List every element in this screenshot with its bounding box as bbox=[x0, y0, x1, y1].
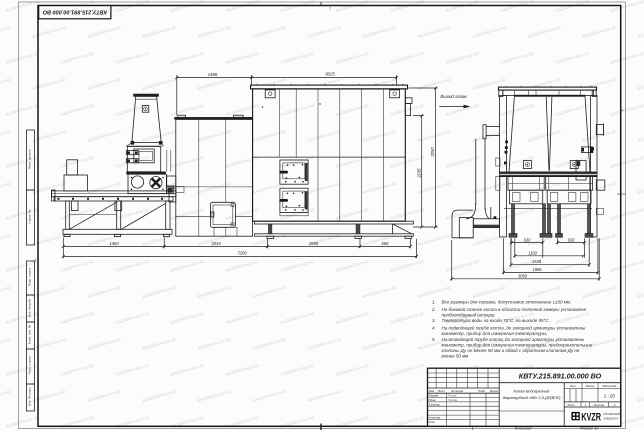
svg-text:2: 2 bbox=[329, 7, 331, 11]
svg-text:KVZR: KVZR bbox=[581, 411, 601, 423]
svg-text:Жаротрубный «КВ»-2,5-ДП(ВПЛ): Жаротрубный «КВ»-2,5-ДП(ВПЛ) bbox=[501, 396, 561, 400]
svg-text:Лист: Лист bbox=[566, 403, 575, 407]
svg-text:Подп. и дата: Подп. и дата bbox=[28, 268, 32, 287]
svg-text:2034: 2034 bbox=[210, 241, 221, 246]
svg-text:630: 630 bbox=[524, 237, 532, 242]
svg-text:Инв. № дубл.: Инв. № дубл. bbox=[28, 298, 32, 317]
svg-text:Температура воды на входе 70°С: Температура воды на входе 70°С, на выход… bbox=[442, 318, 550, 323]
svg-text:Подп.: Подп. bbox=[478, 389, 486, 393]
svg-text:Лист: Лист bbox=[436, 389, 445, 393]
svg-text:№ докум.: № докум. bbox=[451, 389, 464, 393]
svg-text:1486: 1486 bbox=[208, 72, 218, 77]
svg-text:3050: 3050 bbox=[518, 273, 528, 278]
svg-text:1906: 1906 bbox=[532, 267, 542, 272]
svg-text:2.: 2. bbox=[431, 307, 436, 312]
svg-text:Изм.: Изм. bbox=[429, 389, 435, 393]
svg-text:Т.контр.: Т.контр. bbox=[429, 402, 441, 406]
svg-text:2250: 2250 bbox=[430, 147, 435, 158]
svg-text:3.: 3. bbox=[432, 318, 436, 323]
svg-text:Листов: Листов bbox=[593, 403, 605, 407]
svg-text:2235: 2235 bbox=[416, 168, 421, 179]
svg-text:1160: 1160 bbox=[528, 250, 538, 255]
svg-text:685: 685 bbox=[382, 241, 390, 246]
svg-text:1460: 1460 bbox=[109, 241, 119, 246]
svg-text:3025: 3025 bbox=[325, 71, 335, 76]
svg-text:манометр, прибор для измерения: манометр, прибор для измерения температу… bbox=[442, 331, 549, 336]
svg-text:Взам. инв. №: Взам. инв. № bbox=[28, 324, 32, 344]
svg-text:клапаны Ду не менее 50 мм и об: клапаны Ду не менее 50 мм и обвод с обра… bbox=[442, 348, 580, 353]
svg-text:КВТУ.215.891.00.000 ВО: КВТУ.215.891.00.000 ВО bbox=[519, 372, 602, 381]
svg-text:Котел Водогрейный: Котел Водогрейный bbox=[514, 389, 550, 393]
svg-text:5.: 5. bbox=[432, 337, 436, 342]
svg-text:Глухов: Глухов bbox=[448, 398, 458, 402]
svg-text:630: 630 bbox=[568, 237, 576, 242]
svg-text:пробоотборный штуцер.: пробоотборный штуцер. bbox=[442, 311, 496, 317]
svg-text:1.: 1. bbox=[432, 300, 436, 305]
svg-text:Инв. № подл.: Инв. № подл. bbox=[28, 387, 32, 406]
svg-text:На боковой стенке котла в обла: На боковой стенке котла в области топочн… bbox=[442, 306, 587, 312]
svg-text:Масштаб: Масштаб bbox=[603, 384, 617, 388]
svg-text:1 : 20: 1 : 20 bbox=[604, 394, 616, 399]
svg-text:Лит.: Лит. bbox=[569, 384, 577, 388]
svg-text:На подводящей трубе котла, до: На подводящей трубе котла, до запорной а… bbox=[442, 325, 587, 331]
svg-text:Копировал: Копировал bbox=[515, 427, 532, 430]
svg-text:Справ. №: Справ. № bbox=[28, 209, 32, 224]
svg-text:Масса: Масса bbox=[586, 384, 595, 388]
svg-text:2: 2 bbox=[613, 403, 616, 407]
svg-text:манометр, прибор для измерения: манометр, прибор для измерения температу… bbox=[442, 342, 593, 347]
svg-text:Утв.: Утв. bbox=[429, 420, 436, 424]
svg-text:1538: 1538 bbox=[532, 259, 542, 264]
svg-text:Формат А2: Формат А2 bbox=[580, 427, 599, 430]
svg-text:Дата: Дата bbox=[489, 389, 498, 393]
svg-text:менее 50 мм: менее 50 мм bbox=[442, 353, 469, 358]
svg-text:Перв. примен.: Перв. примен. bbox=[28, 149, 32, 170]
svg-text:4.: 4. bbox=[432, 326, 436, 331]
svg-text:Подп. и дата: Подп. и дата bbox=[28, 356, 32, 375]
svg-text:7200: 7200 bbox=[237, 251, 247, 256]
svg-text:На отводящей трубе котла, до з: На отводящей трубе котла, до запорной ар… bbox=[442, 336, 585, 342]
svg-text:КВТУ.215.891.00.000 ВО: КВТУ.215.891.00.000 ВО bbox=[42, 9, 107, 15]
svg-text:КОТЕЛЬНЫЙ: КОТЕЛЬНЫЙ bbox=[604, 412, 621, 416]
svg-text:Выход газов: Выход газов bbox=[440, 94, 467, 99]
svg-text:Все размеры для справок, допус: Все размеры для справок, допустимое откл… bbox=[442, 300, 572, 305]
svg-text:ЗАВОД РУС: ЗАВОД РУС bbox=[604, 416, 619, 420]
svg-text:1950: 1950 bbox=[309, 241, 319, 246]
